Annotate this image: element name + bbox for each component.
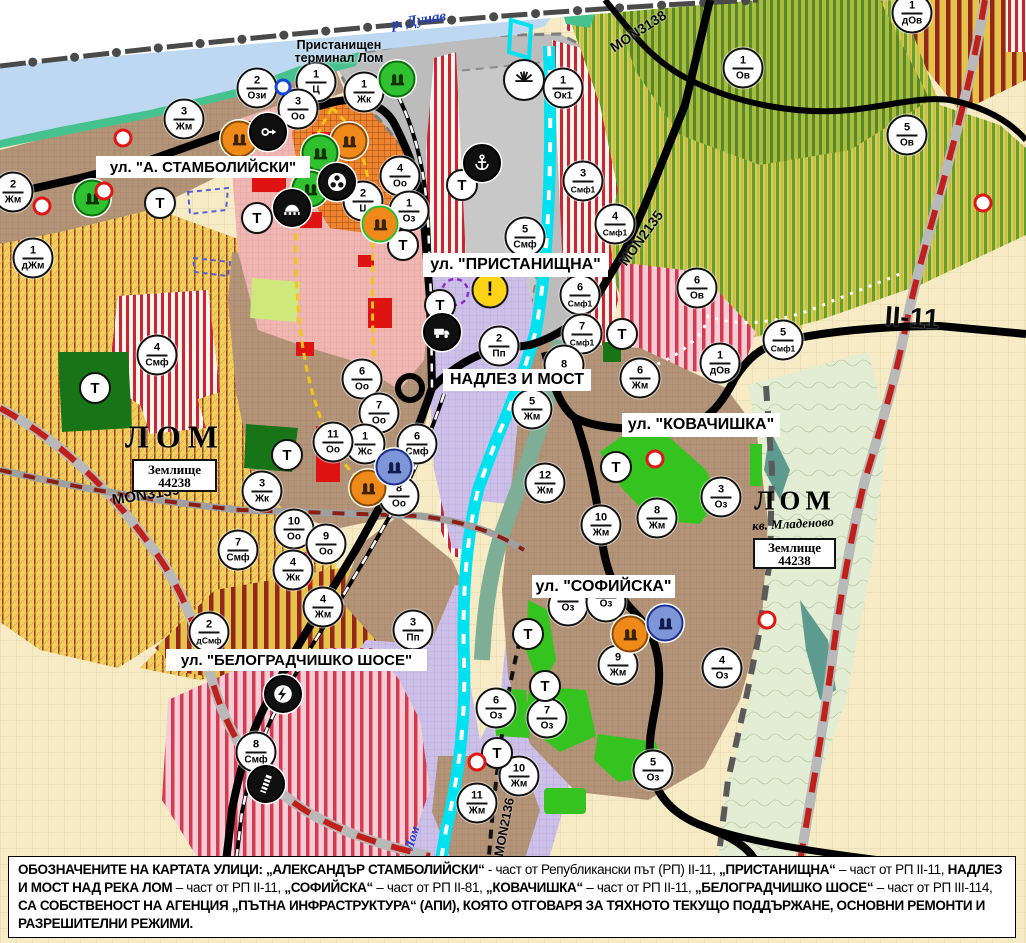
monument-icon[interactable] <box>362 206 399 243</box>
zone-marker-x-Оз[interactable]: Оз <box>548 586 589 627</box>
zone-marker-code: Жм <box>176 122 192 132</box>
fraction-bar <box>522 409 543 411</box>
zone-marker-number: 1 <box>909 0 915 11</box>
zone-marker-code: Оз <box>600 600 613 610</box>
zone-marker-code: Смф1 <box>571 184 595 194</box>
zone-marker-number: 10 <box>513 763 525 774</box>
zone-marker-code: Оо <box>372 416 386 426</box>
fraction-bar <box>288 109 309 111</box>
fraction-bar <box>630 378 651 380</box>
fraction-bar <box>390 176 411 178</box>
zone-marker-number: 9 <box>323 531 329 542</box>
zone-marker-3-Жм[interactable]: 3Жм <box>164 99 205 140</box>
t-marker[interactable]: Т <box>144 187 176 219</box>
red-dot-icon <box>114 129 133 148</box>
zone-marker-9-Оо[interactable]: 9Оо <box>306 524 347 565</box>
caption-segment: „ПРИСТАНИЩНА“ <box>719 862 836 877</box>
fraction-bar <box>486 708 507 710</box>
zone-marker-code: Оз <box>403 214 416 224</box>
fraction-bar <box>284 529 305 531</box>
zone-marker-3-Пп[interactable]: 3Пп <box>393 610 434 651</box>
zone-marker-number: 2 <box>496 333 502 344</box>
fraction-bar <box>643 770 664 772</box>
zone-marker-number: 1 <box>313 69 319 80</box>
zone-marker-4-Жм[interactable]: 4Жм <box>303 587 344 628</box>
fraction-bar <box>515 237 536 239</box>
fraction-bar <box>199 632 220 634</box>
zone-marker-number: 8 <box>654 505 660 516</box>
fraction-bar <box>403 630 424 632</box>
caption-segment: – част от РП III-114, <box>873 880 992 895</box>
fraction-bar <box>897 135 918 137</box>
zone-marker-code: Оо <box>393 179 407 189</box>
t-marker[interactable]: Т <box>79 372 111 404</box>
zone-marker-11-Жм[interactable]: 11Жм <box>457 783 498 824</box>
zone-marker-number: 5 <box>529 396 535 407</box>
zone-marker-code: Смф1 <box>570 337 594 347</box>
fraction-bar <box>687 288 708 290</box>
zone-marker-number: 1 <box>30 245 36 256</box>
red-dot-icon <box>646 450 665 469</box>
zone-marker-code: Ц <box>312 85 319 95</box>
zone-marker-number: 5 <box>780 327 786 338</box>
fraction-bar <box>283 570 304 572</box>
zone-marker-2-дСмф[interactable]: 2дСмф <box>189 612 230 653</box>
zone-marker-number: 1 <box>740 55 746 66</box>
fraction-bar <box>467 803 488 805</box>
fraction-bar <box>710 363 731 365</box>
zone-marker-code: Оо <box>355 382 369 392</box>
zone-marker-number: 6 <box>359 366 365 377</box>
zone-marker-number: 1 <box>361 79 367 90</box>
caption-segment: – част от РП II-11, <box>583 880 695 895</box>
zone-marker-code: Оз <box>715 500 728 510</box>
fraction-bar <box>537 718 558 720</box>
fraction-bar <box>712 668 733 670</box>
zone-marker-11-Оо[interactable]: 11Оо <box>313 422 354 463</box>
zone-marker-number: 11 <box>471 790 483 801</box>
zone-marker-7-Оз[interactable]: 7Оз <box>527 698 568 739</box>
zone-marker-number: 4 <box>397 163 403 174</box>
zone-marker-code: Пп <box>492 349 505 359</box>
zone-marker-5-Оз[interactable]: 5Оз <box>633 750 674 791</box>
zone-marker-number: 11 <box>327 429 339 440</box>
zone-marker-code: Ок1 <box>554 91 572 101</box>
fraction-bar <box>733 68 754 70</box>
t-marker[interactable]: Т <box>241 202 273 234</box>
zone-marker-code: Жк <box>255 494 269 504</box>
zone-marker-number: 8 <box>253 739 259 750</box>
zone-marker-number: 1 <box>362 431 368 442</box>
zone-marker-1-дЖм[interactable]: 1дЖм <box>13 238 54 279</box>
fraction-bar <box>352 379 373 381</box>
people-icon[interactable] <box>318 163 356 201</box>
zone-marker-3-Смф1[interactable]: 3Смф1 <box>563 161 604 202</box>
fraction-bar <box>147 355 168 357</box>
rail-crossing-icon[interactable] <box>247 765 285 803</box>
zone-marker-number: 1 <box>717 350 723 361</box>
zone-marker-code: дОв <box>902 16 922 26</box>
fraction-bar <box>407 444 428 446</box>
zone-marker-6-Жм[interactable]: 6Жм <box>620 358 661 399</box>
red-dot-icon <box>33 197 52 216</box>
t-marker[interactable]: Т <box>512 618 544 650</box>
blue-dot-icon <box>275 79 292 96</box>
zone-marker-1-дОв[interactable]: 1дОв <box>892 0 933 34</box>
zone-marker-number: 6 <box>493 695 499 706</box>
zone-marker-number: 4 <box>612 211 618 222</box>
fraction-bar <box>313 607 334 609</box>
zone-marker-x-Оз[interactable]: Оз <box>586 582 627 623</box>
zone-marker-1-Ов[interactable]: 1Ов <box>723 48 764 89</box>
zone-marker-code: дСмф <box>196 635 221 645</box>
zone-marker-6-Оз[interactable]: 6Оз <box>476 688 517 729</box>
arrow-right-icon[interactable] <box>249 113 287 151</box>
zone-marker-number: 6 <box>577 282 583 293</box>
zone-marker-number: 5 <box>522 224 528 235</box>
zone-marker-code: Жм <box>5 195 21 205</box>
zone-marker-2-Ози[interactable]: 2Ози <box>237 68 278 109</box>
caption-segment: - част от Републикански път (РП) II-11, <box>485 862 719 877</box>
fraction-bar <box>247 88 268 90</box>
zone-marker-5-Смф1[interactable]: 5Смф1 <box>763 320 804 361</box>
zone-marker-number: 3 <box>580 168 586 179</box>
monument-icon[interactable] <box>647 605 684 642</box>
caption-segment: – част от РП II-81, <box>373 880 486 895</box>
zone-marker-number: 2 <box>254 75 260 86</box>
zone-marker-number: 5 <box>650 757 656 768</box>
fraction-bar <box>353 201 374 203</box>
zone-marker-12-Жм[interactable]: 12Жм <box>525 463 566 504</box>
fraction-bar <box>306 82 327 84</box>
fraction-bar <box>570 295 591 297</box>
t-marker[interactable]: Т <box>271 439 303 471</box>
zone-marker-number: 3 <box>410 617 416 628</box>
fraction-bar <box>647 518 668 520</box>
map-caption: ОБОЗНАЧЕНИТЕ НА КАРТАТА УЛИЦИ: „АЛЕКСАНД… <box>8 856 1016 938</box>
zone-marker-2-Жм[interactable]: 2Жм <box>0 172 34 213</box>
zone-marker-number: 6 <box>694 275 700 286</box>
zone-marker-code: Жм <box>593 528 609 538</box>
zone-marker-code: Оз <box>716 671 729 681</box>
zone-marker-number: 7 <box>235 537 241 548</box>
zone-marker-6-Смф1[interactable]: 6Смф1 <box>560 275 601 316</box>
fraction-bar <box>174 119 195 121</box>
zone-marker-number: 4 <box>154 342 160 353</box>
zone-marker-number: 1 <box>406 198 412 209</box>
fraction-bar <box>535 483 556 485</box>
fraction-bar <box>316 544 337 546</box>
zone-marker-number: 3 <box>718 484 724 495</box>
zone-marker-code: Жм <box>469 806 485 816</box>
zoning-map-canvas[interactable]: 2Ози1Ц3Оо1Жк1Ок13Жм4Оо2Ц1Оз2Жм1дЖм4Смф3С… <box>0 0 1026 943</box>
zone-marker-3-Оз[interactable]: 3Оз <box>701 477 742 518</box>
zone-marker-number: 7 <box>579 321 585 332</box>
caption-segment: „БЕЛОГРАДЧИШКО ШОСЕ“ <box>695 880 873 895</box>
zone-marker-code: Оз <box>647 773 660 783</box>
zone-marker-code: Оо <box>287 532 301 542</box>
fraction-bar <box>323 442 344 444</box>
monument-icon[interactable] <box>379 61 416 98</box>
zone-marker-4-Смф1[interactable]: 4Смф1 <box>595 204 636 245</box>
caption-segment: – част от РП II-11, <box>172 880 284 895</box>
zone-marker-code: Оо <box>326 445 340 455</box>
zone-marker-10-Жм[interactable]: 10Жм <box>581 505 622 546</box>
fraction-bar <box>228 550 249 552</box>
zone-marker-number: 2 <box>360 188 366 199</box>
zone-marker-code: Оз <box>490 711 503 721</box>
zone-marker-code: Смф1 <box>568 298 592 308</box>
zone-marker-number: 7 <box>376 400 382 411</box>
fraction-bar <box>354 92 375 94</box>
zone-marker-number: 6 <box>637 365 643 376</box>
zone-marker-4-Оз[interactable]: 4Оз <box>702 648 743 689</box>
fraction-bar <box>509 776 530 778</box>
t-marker[interactable]: Т <box>600 451 632 483</box>
fraction-bar <box>355 444 376 446</box>
zone-marker-3-Жк[interactable]: 3Жк <box>242 471 283 512</box>
zone-marker-number: 3 <box>259 478 265 489</box>
monument-icon[interactable] <box>612 616 649 653</box>
fraction-bar <box>605 224 626 226</box>
zone-marker-6-Ов[interactable]: 6Ов <box>677 268 718 309</box>
zone-marker-5-Ов[interactable]: 5Ов <box>887 115 928 156</box>
fraction-bar <box>489 346 510 348</box>
fraction-bar <box>572 334 593 336</box>
fraction-bar <box>246 752 267 754</box>
anchor-icon[interactable] <box>463 144 501 182</box>
zone-marker-5-Жм[interactable]: 5Жм <box>512 389 553 430</box>
zone-marker-number: 4 <box>320 594 326 605</box>
fraction-bar <box>252 491 273 493</box>
zone-marker-code: Ов <box>900 138 914 148</box>
tunnel-icon[interactable] <box>273 189 311 227</box>
zone-marker-4-Смф[interactable]: 4Смф <box>137 335 178 376</box>
zone-marker-code: дОв <box>710 366 730 376</box>
caption-segment: „КОВАЧИШКА“ <box>486 880 583 895</box>
red-dot-icon <box>95 182 114 201</box>
zone-marker-code: Жм <box>610 668 626 678</box>
zone-marker-code: Оз <box>541 721 554 731</box>
fraction-bar <box>608 665 629 667</box>
fraction-bar <box>591 525 612 527</box>
zone-marker-code: Смф1 <box>771 343 795 353</box>
zone-marker-code: Жм <box>537 486 553 496</box>
zone-marker-number: 2 <box>206 619 212 630</box>
zone-marker-8-x[interactable]: 8 <box>544 345 585 386</box>
zone-marker-code: Жк <box>286 573 300 583</box>
zone-marker-number: 8 <box>561 360 567 371</box>
zone-marker-code: Жм <box>524 412 540 422</box>
markers-layer: 2Ози1Ц3Оо1Жк1Ок13Жм4Оо2Ц1Оз2Жм1дЖм4Смф3С… <box>0 0 1026 943</box>
zone-marker-number: 12 <box>539 470 551 481</box>
t-marker[interactable]: Т <box>529 670 561 702</box>
zone-marker-2-Пп[interactable]: 2Пп <box>479 326 520 367</box>
zone-marker-number: 5 <box>904 122 910 133</box>
zone-marker-code: Смф <box>513 240 536 250</box>
sun-icon[interactable] <box>503 59 545 101</box>
zone-marker-number: 3 <box>181 106 187 117</box>
fraction-bar <box>399 211 420 213</box>
zone-marker-code: Смф <box>226 553 249 563</box>
zone-marker-number: 10 <box>288 516 300 527</box>
zone-marker-code: Жк <box>357 95 371 105</box>
fraction-bar <box>902 13 923 15</box>
fraction-bar <box>773 340 794 342</box>
t-marker[interactable]: Т <box>606 318 638 350</box>
zone-marker-code: Оо <box>291 112 305 122</box>
zone-marker-number: 10 <box>595 512 607 523</box>
zone-marker-number: 3 <box>295 96 301 107</box>
zone-marker-code: Жм <box>649 521 665 531</box>
red-dot-icon <box>468 753 487 772</box>
zone-marker-code: Смф <box>244 755 267 765</box>
zone-marker-4-Жк[interactable]: 4Жк <box>273 550 314 591</box>
fraction-bar <box>3 192 24 194</box>
zone-marker-code: Ов <box>736 71 750 81</box>
fraction-bar <box>369 413 390 415</box>
caption-segment: СА СОБСТВЕНОСТ НА АГЕНЦИЯ „ПЪТНА ИНФРАСТ… <box>18 898 985 931</box>
zone-marker-code: Смф <box>145 358 168 368</box>
zone-marker-1-дОв[interactable]: 1дОв <box>700 343 741 384</box>
zone-marker-8-Жм[interactable]: 8Жм <box>637 498 678 539</box>
zone-marker-code: Оо <box>319 547 333 557</box>
warning-icon[interactable]: ! <box>472 272 509 309</box>
zone-marker-number: 2 <box>10 179 16 190</box>
zone-marker-code: Жс <box>358 447 373 457</box>
zone-marker-1-Ок1[interactable]: 1Ок1 <box>543 68 584 109</box>
zone-marker-code: Пп <box>406 633 419 643</box>
truck-icon[interactable] <box>423 313 461 351</box>
zone-marker-code: дЖм <box>22 261 45 271</box>
zone-marker-code: Оо <box>392 499 406 509</box>
zone-marker-code: Ов <box>690 291 704 301</box>
fraction-bar <box>711 497 732 499</box>
zone-marker-code: Оз <box>562 604 575 614</box>
monument-icon[interactable] <box>376 449 413 486</box>
zone-marker-7-Смф[interactable]: 7Смф <box>218 530 259 571</box>
zone-marker-code: Жм <box>511 779 527 789</box>
zone-marker-number: 9 <box>615 652 621 663</box>
lightning-icon[interactable] <box>264 675 302 713</box>
zone-marker-code: Жм <box>315 610 331 620</box>
caption-segment: „СОФИЙСКА“ <box>284 880 373 895</box>
zone-marker-number: 4 <box>290 557 296 568</box>
zone-marker-number: 7 <box>544 705 550 716</box>
fraction-bar <box>389 496 410 498</box>
fraction-bar <box>23 258 44 260</box>
zone-marker-code: Ози <box>248 91 267 101</box>
red-dot-icon <box>974 194 993 213</box>
zone-marker-number: 1 <box>560 75 566 86</box>
fraction-bar <box>573 181 594 183</box>
zone-marker-5-Смф[interactable]: 5Смф <box>505 217 546 258</box>
zone-marker-number: 6 <box>414 431 420 442</box>
zone-marker-number: 4 <box>719 655 725 666</box>
zone-marker-code: Смф1 <box>603 227 627 237</box>
red-dot-icon <box>758 611 777 630</box>
caption-segment: – част от РП II-11, <box>836 862 948 877</box>
caption-segment: ОБОЗНАЧЕНИТЕ НА КАРТАТА УЛИЦИ: „АЛЕКСАНД… <box>18 862 485 877</box>
fraction-bar <box>553 88 574 90</box>
zone-marker-code: Жм <box>632 381 648 391</box>
